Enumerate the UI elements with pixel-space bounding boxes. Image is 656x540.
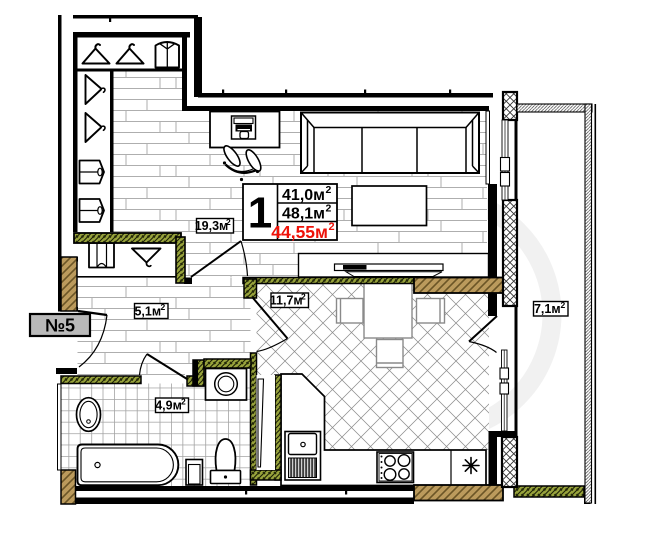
svg-text:41,0м: 41,0м [282,187,325,204]
svg-text:2: 2 [226,217,231,227]
svg-text:2: 2 [326,184,332,196]
svg-text:4,9м: 4,9м [155,399,182,413]
svg-text:44,55м: 44,55м [271,222,328,242]
svg-text:7,1м: 7,1м [534,302,561,316]
svg-text:19,3м: 19,3м [195,219,229,233]
svg-text:1: 1 [248,189,272,238]
svg-text:2: 2 [329,221,335,233]
svg-text:5,1м: 5,1м [134,304,161,318]
svg-text:2: 2 [561,300,566,310]
svg-text:№5: №5 [45,316,75,336]
svg-text:2: 2 [326,203,332,215]
svg-text:48,1м: 48,1м [282,206,325,223]
svg-text:11,7м: 11,7м [270,294,303,308]
svg-text:2: 2 [181,397,186,407]
svg-text:2: 2 [161,302,166,312]
svg-text:2: 2 [301,292,306,302]
